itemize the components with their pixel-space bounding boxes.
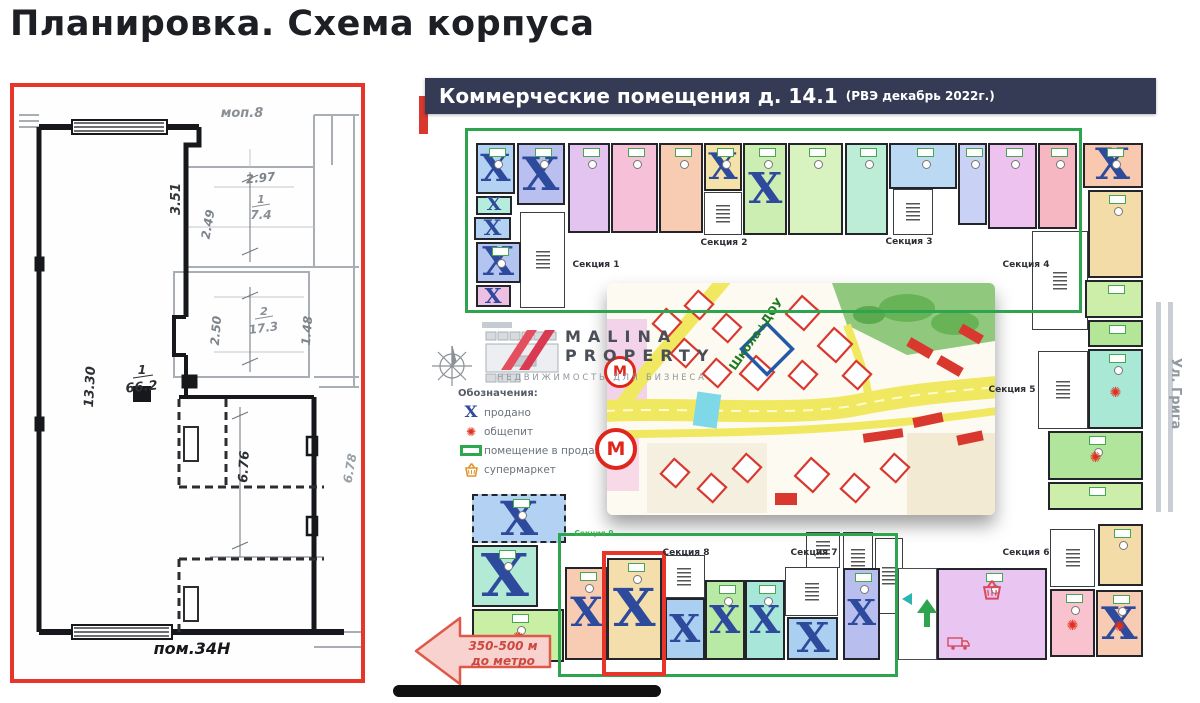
section-label: Секция 9 <box>574 529 613 538</box>
entry-marker <box>1071 606 1080 615</box>
unit-number-tag <box>499 550 516 559</box>
commercial-unit: X <box>665 598 705 660</box>
malina-property-logo: MALINA PROPERTY НЕДВИЖИМОСТЬ ДЛЯ БИЗНЕСА <box>497 328 715 383</box>
stairs-icon <box>1053 272 1067 290</box>
commercial-unit: X <box>472 545 538 607</box>
unit-number-tag <box>580 572 597 581</box>
plan-dimension: 1 <box>138 363 146 377</box>
for-sale-icon <box>458 445 484 456</box>
page-title: Планировка. Схема корпуса <box>10 4 594 44</box>
plan-dimension: 17.3 <box>248 319 279 337</box>
commercial-unit <box>611 143 658 233</box>
slide: Планировка. Схема корпуса <box>0 0 1200 703</box>
sold-x-mark: X <box>847 600 876 628</box>
sold-x-mark: X <box>481 552 529 599</box>
entry-marker <box>1112 160 1121 169</box>
metro-distance-arrow: 350-500 м до метро <box>408 612 558 694</box>
unit-number-tag <box>759 148 776 157</box>
highlighted-unit-outline <box>602 551 666 676</box>
plan-dimension: 2 <box>260 305 268 318</box>
logo-name-2: PROPERTY <box>565 347 715 366</box>
commercial-unit <box>845 143 888 235</box>
metro-crossing <box>693 391 721 428</box>
sold-x-mark: X <box>750 605 781 635</box>
unit-number-tag <box>583 148 600 157</box>
entry-marker <box>494 160 503 169</box>
commercial-unit: X <box>472 494 566 543</box>
commercial-unit: ✺ <box>1088 349 1143 429</box>
sold-x-icon: X <box>457 406 484 419</box>
unit-number-tag <box>1089 487 1106 496</box>
commercial-unit <box>1088 320 1143 347</box>
unit-number-tag <box>1113 595 1130 604</box>
entry-marker <box>680 160 689 169</box>
unit-number-tag <box>628 148 645 157</box>
stairs-icon <box>1066 549 1080 567</box>
logo-name-1: MALINA <box>565 328 715 347</box>
sold-x-mark: X <box>710 605 741 635</box>
section-label: Секция 3 <box>886 237 933 247</box>
unit-number-tag <box>809 148 826 157</box>
street-name: Ул. Грига <box>1168 358 1183 429</box>
entry-marker <box>1118 607 1127 616</box>
entry-marker <box>588 160 597 169</box>
commercial-unit <box>788 143 843 235</box>
legend-item-for-sale: помещение в продаже <box>458 441 611 460</box>
unit-number-tag <box>759 585 776 594</box>
plan-dimension: моп.8 <box>221 106 264 121</box>
commercial-unit: X <box>705 580 745 660</box>
stairs-icon <box>677 568 691 586</box>
stair-core <box>1038 351 1088 429</box>
entry-marker <box>814 160 823 169</box>
legend-label: супермаркет <box>484 464 556 476</box>
commercial-unit <box>988 143 1037 229</box>
stair-core <box>1050 529 1095 587</box>
logo-mark <box>497 328 555 370</box>
plan-dimension: 6.76 <box>236 450 253 483</box>
left-arrow-icon <box>902 593 912 605</box>
stair-core <box>704 192 742 235</box>
location-map: Школа+ДОУ <box>607 283 995 515</box>
food-icon: ✺ <box>458 426 484 438</box>
legend-item-sold: X продано <box>458 403 611 422</box>
commercial-unit: X <box>704 143 742 191</box>
commercial-unit <box>1098 524 1143 586</box>
entry-marker <box>922 160 931 169</box>
entry-marker <box>764 160 773 169</box>
section-label: Секция 2 <box>701 238 748 248</box>
sold-x-mark: X <box>487 198 502 212</box>
unit-number-tag <box>855 573 872 582</box>
commercial-unit: X✺ <box>1096 590 1143 657</box>
legend: Обозначения: X продано ✺ общепит помещен… <box>458 388 611 479</box>
plan-dimension: 13.30 <box>82 366 99 408</box>
commercial-unit <box>958 143 987 225</box>
commercial-unit: X <box>565 567 607 660</box>
commercial-unit: X <box>476 285 511 307</box>
unit-number-tag <box>1107 148 1124 157</box>
unit-number-tag <box>917 148 934 157</box>
unit-number-tag <box>1066 594 1083 603</box>
stairs-icon <box>851 549 865 567</box>
commercial-unit <box>1085 280 1143 318</box>
commercial-unit: ✺ <box>1050 589 1095 657</box>
legend-item-market: супермаркет <box>458 460 611 479</box>
commercial-unit <box>1038 143 1077 229</box>
commercial-unit: X <box>476 242 521 283</box>
food-icon: ✺ <box>1110 386 1122 400</box>
entry-marker <box>1114 366 1123 375</box>
entry-marker <box>1056 160 1065 169</box>
unit-number-tag <box>535 148 552 157</box>
commercial-unit <box>889 143 957 189</box>
unit-number-tag <box>1109 325 1126 334</box>
commercial-unit: X <box>745 580 785 660</box>
unit-number-tag <box>1109 195 1126 204</box>
unit-number-tag <box>489 148 506 157</box>
entry-marker <box>1114 207 1123 216</box>
stairs-icon <box>882 567 896 585</box>
entry-marker <box>860 585 869 594</box>
entry-marker <box>724 597 733 606</box>
stair-core <box>663 555 705 598</box>
entry-marker <box>633 160 642 169</box>
plan-dimension: 7.4 <box>250 208 271 222</box>
stairs-icon <box>1056 381 1070 399</box>
plan-dimension: 66.2 <box>125 378 158 396</box>
unit-number-tag <box>1051 148 1068 157</box>
section-label: Секция 4 <box>1003 260 1050 270</box>
sold-x-mark: X <box>796 622 829 655</box>
sold-x-mark: X <box>570 598 603 630</box>
logo-tagline: НЕДВИЖИМОСТЬ ДЛЯ БИЗНЕСА <box>497 373 715 383</box>
legend-label: общепит <box>484 426 533 438</box>
stair-core <box>1032 231 1088 330</box>
unit-number-tag <box>1108 285 1125 294</box>
stairs-icon <box>805 583 819 601</box>
compass-icon <box>430 344 474 388</box>
entry-marker <box>1011 160 1020 169</box>
plan-dimension: 6.78 <box>341 453 360 485</box>
commercial-unit: X <box>787 617 838 660</box>
basket-icon <box>458 463 484 477</box>
entry-marker <box>722 160 731 169</box>
legend-label: продано <box>484 407 531 419</box>
footer-bar <box>393 685 661 697</box>
legend-item-food: ✺ общепит <box>458 422 611 441</box>
floorplan-panel: моп.82.973.512.4917.42.50217.31.4813.301… <box>10 83 365 683</box>
plan-dimension: 2.49 <box>199 209 218 241</box>
corridor <box>898 568 937 660</box>
street-line <box>1156 302 1161 512</box>
metro-distance-line1: 350-500 м <box>468 639 537 653</box>
scheme-title: Коммерческие помещения д. 14.1 <box>439 84 838 108</box>
food-icon: ✺ <box>1067 619 1079 633</box>
sold-x-mark: X <box>748 172 782 205</box>
plan-dimension: 1 <box>257 193 265 206</box>
commercial-unit: X <box>843 568 880 660</box>
commercial-unit <box>1048 482 1143 510</box>
commercial-unit: X <box>476 143 515 194</box>
entry-marker <box>540 160 549 169</box>
stair-core <box>520 212 565 308</box>
sold-x-mark: X <box>485 288 502 305</box>
commercial-unit: X <box>743 143 787 235</box>
entry-marker <box>585 584 594 593</box>
stairs-icon <box>716 205 730 223</box>
food-icon: ✺ <box>1090 451 1102 465</box>
section-label: Секция 1 <box>573 260 620 270</box>
commercial-unit: X <box>517 143 565 205</box>
truck-icon <box>947 636 971 651</box>
plan-dimension: 1.48 <box>299 315 316 346</box>
up-arrow-icon <box>917 599 937 627</box>
commercial-unit <box>937 568 1047 660</box>
food-icon: ✺ <box>1114 620 1126 634</box>
section-label: Секция 6 <box>1003 548 1050 558</box>
entry-marker <box>497 259 506 268</box>
stairs-icon <box>906 203 920 221</box>
metro-marker: М <box>595 428 637 470</box>
unit-number-tag <box>719 585 736 594</box>
unit-number-tag <box>966 148 983 157</box>
section-label: Секция 7 <box>791 548 838 558</box>
commercial-unit <box>1088 190 1143 278</box>
scheme-subtitle: (РВЭ декабрь 2022г.) <box>846 89 995 103</box>
commercial-unit <box>568 143 610 233</box>
plan-dimension: 2.97 <box>245 169 277 186</box>
commercial-unit: ✺ <box>1048 431 1143 480</box>
unit-number-tag <box>1089 436 1106 445</box>
stairs-icon <box>536 251 550 269</box>
unit-number-tag <box>513 499 530 508</box>
entry-marker <box>1119 541 1128 550</box>
unit-number-tag <box>860 148 877 157</box>
plan-dimension: пом.34Н <box>154 639 231 658</box>
commercial-unit: X <box>476 196 512 215</box>
legend-title: Обозначения: <box>458 388 611 399</box>
commercial-unit: X <box>1083 143 1143 188</box>
unit-number-tag <box>492 247 509 256</box>
entry-marker <box>764 597 773 606</box>
entry-marker <box>971 160 980 169</box>
entry-marker <box>865 160 874 169</box>
legend-label: помещение в продаже <box>484 445 611 457</box>
unit-number-tag <box>1006 148 1023 157</box>
commercial-unit: X <box>474 217 511 240</box>
unit-number-tag <box>1114 529 1131 538</box>
basket-icon <box>981 580 1003 600</box>
entry-marker <box>518 511 527 520</box>
stair-core <box>785 567 838 616</box>
section-label: Секция 5 <box>989 385 1036 395</box>
scheme-header: Коммерческие помещения д. 14.1 (РВЭ дека… <box>425 78 1156 114</box>
unit-number-tag <box>675 148 692 157</box>
stair-core <box>893 189 933 235</box>
commercial-unit <box>659 143 703 233</box>
metro-letter: М <box>607 438 626 460</box>
unit-number-tag <box>1109 354 1126 363</box>
metro-distance-line2: до метро <box>470 654 535 668</box>
entry-marker <box>504 562 513 571</box>
floorplan-drawing: моп.82.973.512.4917.42.50217.31.4813.301… <box>14 87 361 679</box>
sold-x-mark: X <box>670 614 701 644</box>
unit-number-tag <box>717 148 734 157</box>
sold-x-mark: X <box>484 220 502 237</box>
section-label: Секция 8 <box>663 548 710 558</box>
plan-dimension: 2.50 <box>208 315 225 346</box>
plan-dimension: 3.51 <box>169 183 184 215</box>
